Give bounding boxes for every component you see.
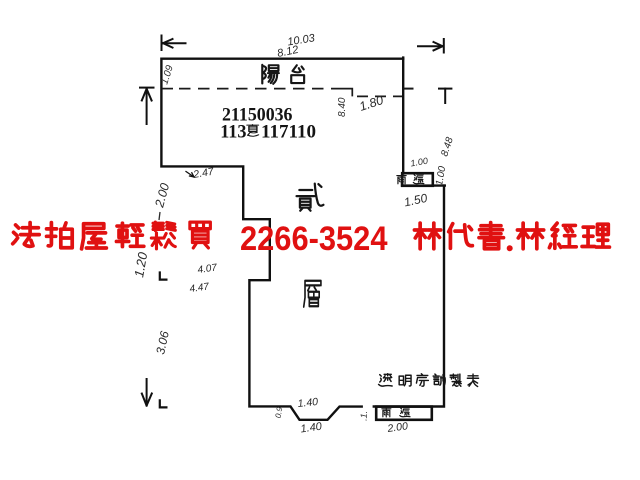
- svg-text:8.40: 8.40: [337, 97, 348, 117]
- svg-text:2266-3524: 2266-3524: [240, 220, 388, 258]
- svg-text:4.07: 4.07: [197, 262, 218, 276]
- svg-text:1.00: 1.00: [410, 156, 429, 169]
- svg-text:1.40: 1.40: [297, 396, 319, 410]
- svg-text:1.00: 1.00: [434, 165, 448, 187]
- svg-text:1.20: 1.20: [131, 250, 150, 278]
- svg-text:113: 113: [220, 122, 246, 142]
- svg-text:3.06: 3.06: [153, 330, 172, 356]
- svg-text:4.47: 4.47: [189, 281, 210, 295]
- svg-text:117110: 117110: [261, 122, 316, 142]
- svg-text:2.00: 2.00: [386, 420, 409, 435]
- svg-text:1.50: 1.50: [403, 191, 429, 210]
- svg-text:1.40: 1.40: [300, 420, 324, 435]
- svg-text:2.47: 2.47: [191, 165, 215, 181]
- svg-text:.1.: .1.: [359, 411, 370, 422]
- svg-text:2.00: 2.00: [152, 182, 172, 210]
- svg-text:8.48: 8.48: [439, 136, 456, 158]
- svg-text:0.9: 0.9: [274, 406, 285, 419]
